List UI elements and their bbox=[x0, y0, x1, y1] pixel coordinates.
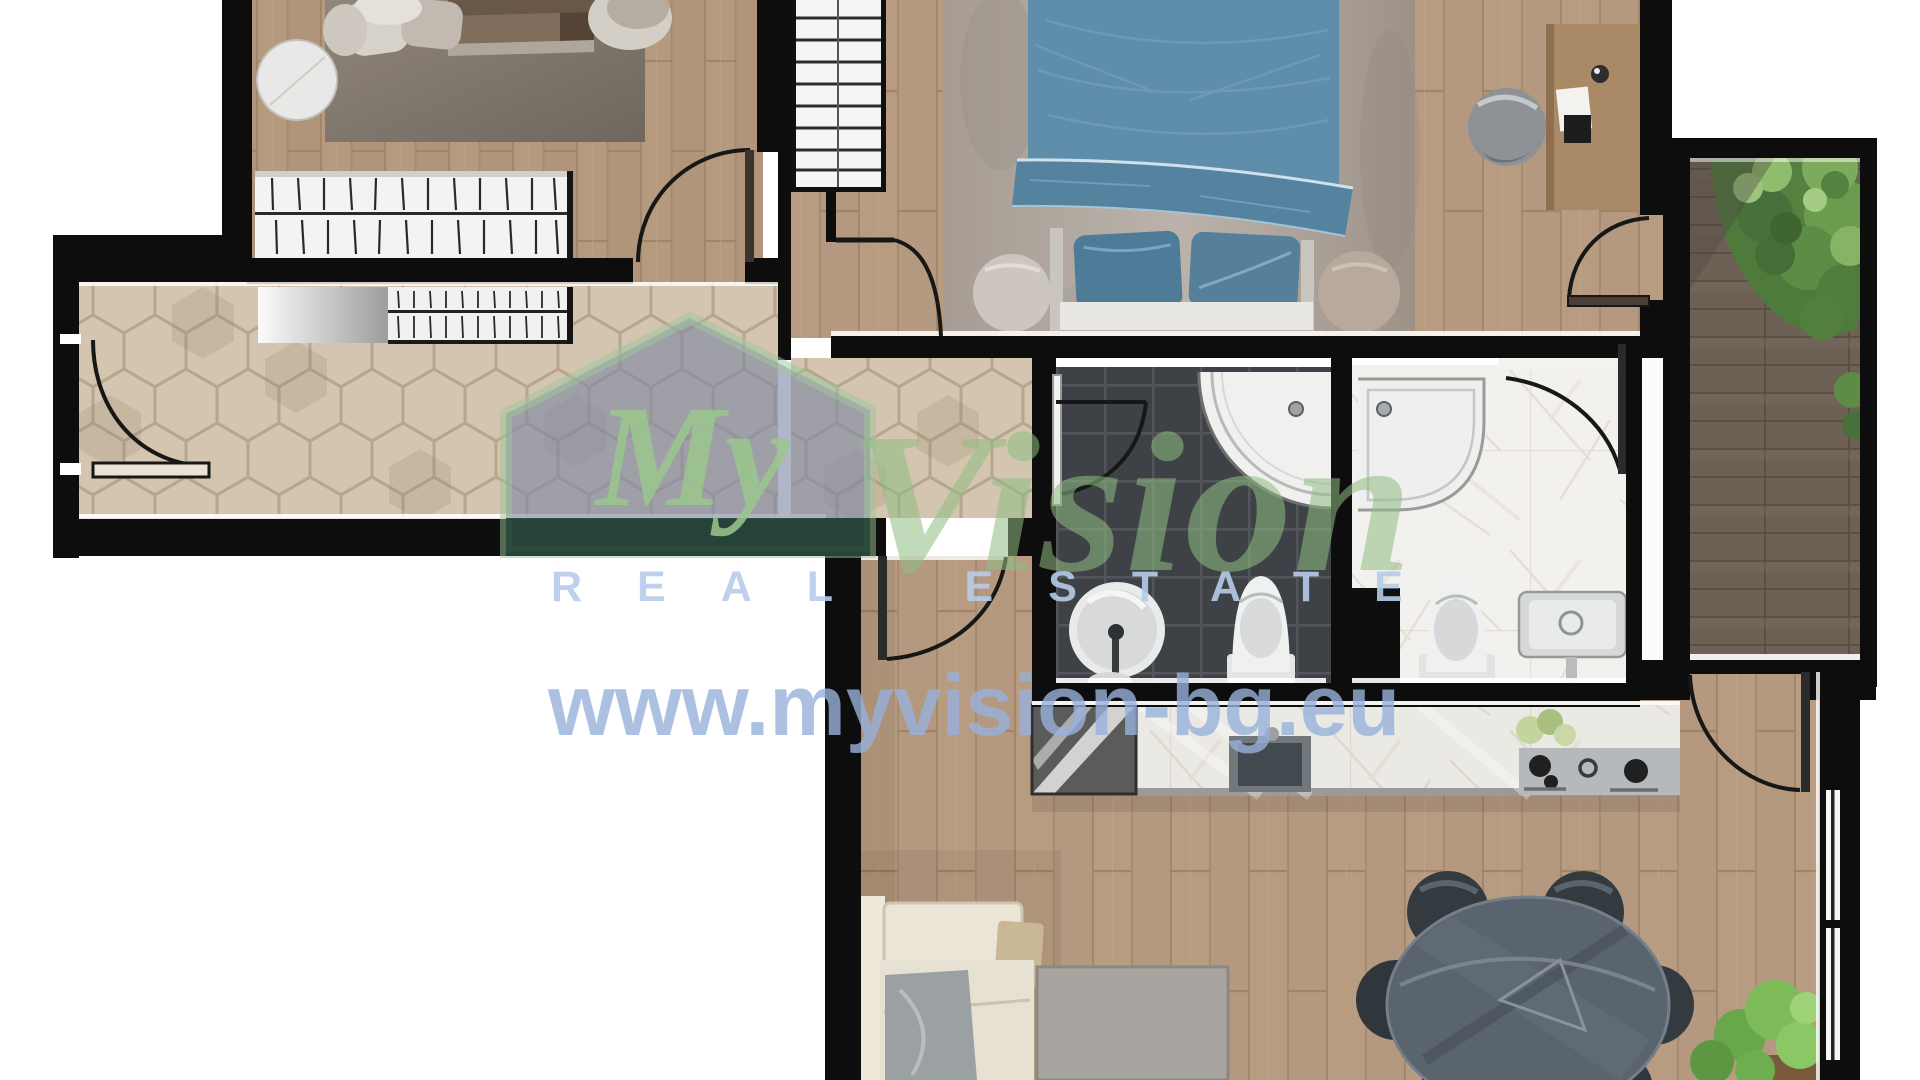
svg-text:REAL ESTATE: REAL ESTATE bbox=[551, 563, 1458, 611]
svg-text:www.myvision-bg.eu: www.myvision-bg.eu bbox=[547, 658, 1400, 754]
svg-text:My: My bbox=[594, 377, 790, 537]
